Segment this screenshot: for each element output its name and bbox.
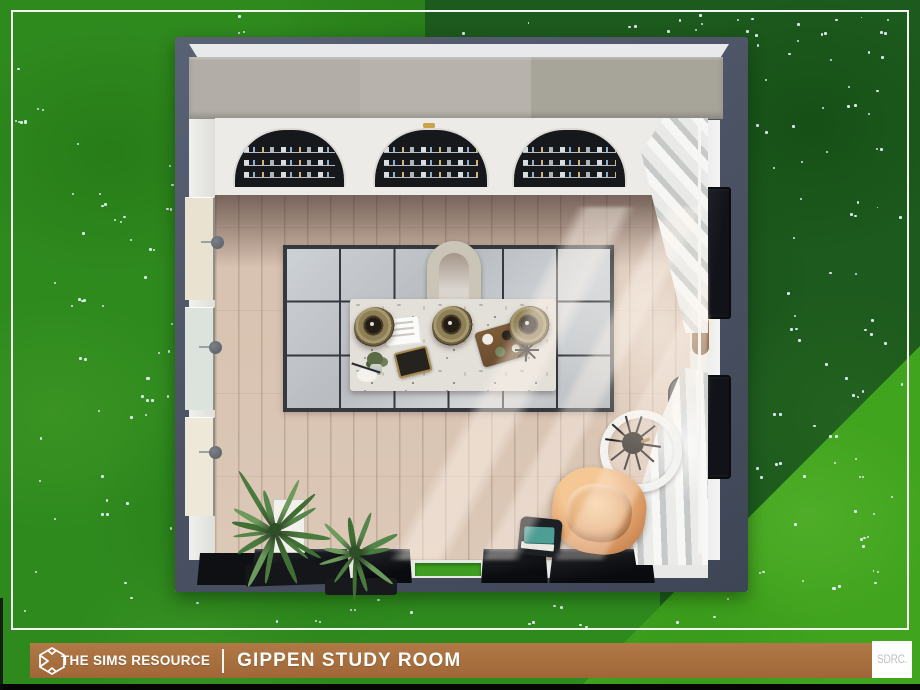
wall-knob [211,236,224,249]
doorway [415,563,481,576]
cup [481,332,495,346]
palm-core [349,546,361,558]
leaning-frame [185,197,215,300]
bottom-black-strip [0,684,920,690]
pendant-lamp [509,306,551,348]
tsr-banner: THE SIMS RESOURCE GIPPEN STUDY ROOM [30,643,872,678]
tsr-brand: THE SIMS RESOURCE [30,646,210,676]
wall-knob [209,341,222,354]
pendant-lamp [432,306,474,348]
wall-knob [209,446,222,459]
banner-divider [222,649,224,673]
screenshot-stage: THE SIMS RESOURCE GIPPEN STUDY ROOM SDRC… [0,0,920,690]
cup [494,346,506,358]
page-title: GIPPEN STUDY ROOM [237,650,461,672]
palm-core [269,523,281,535]
top-wall-sill [189,44,729,57]
pendant-lamp [354,307,396,349]
curtain-rod [698,122,701,554]
gold-decor [423,123,435,128]
book [524,526,555,543]
sdrc-label: SDRC. [877,654,907,666]
side-table [517,516,563,558]
leaning-frame [185,417,215,516]
leaning-frame [185,307,215,410]
left-edge-strip [0,598,3,690]
brand-label: THE SIMS RESOURCE [61,653,210,668]
cabinet-top [189,57,723,119]
sdrc-watermark: SDRC. [872,641,912,678]
study-room-topdown [175,37,748,592]
arch-chair [427,241,481,305]
